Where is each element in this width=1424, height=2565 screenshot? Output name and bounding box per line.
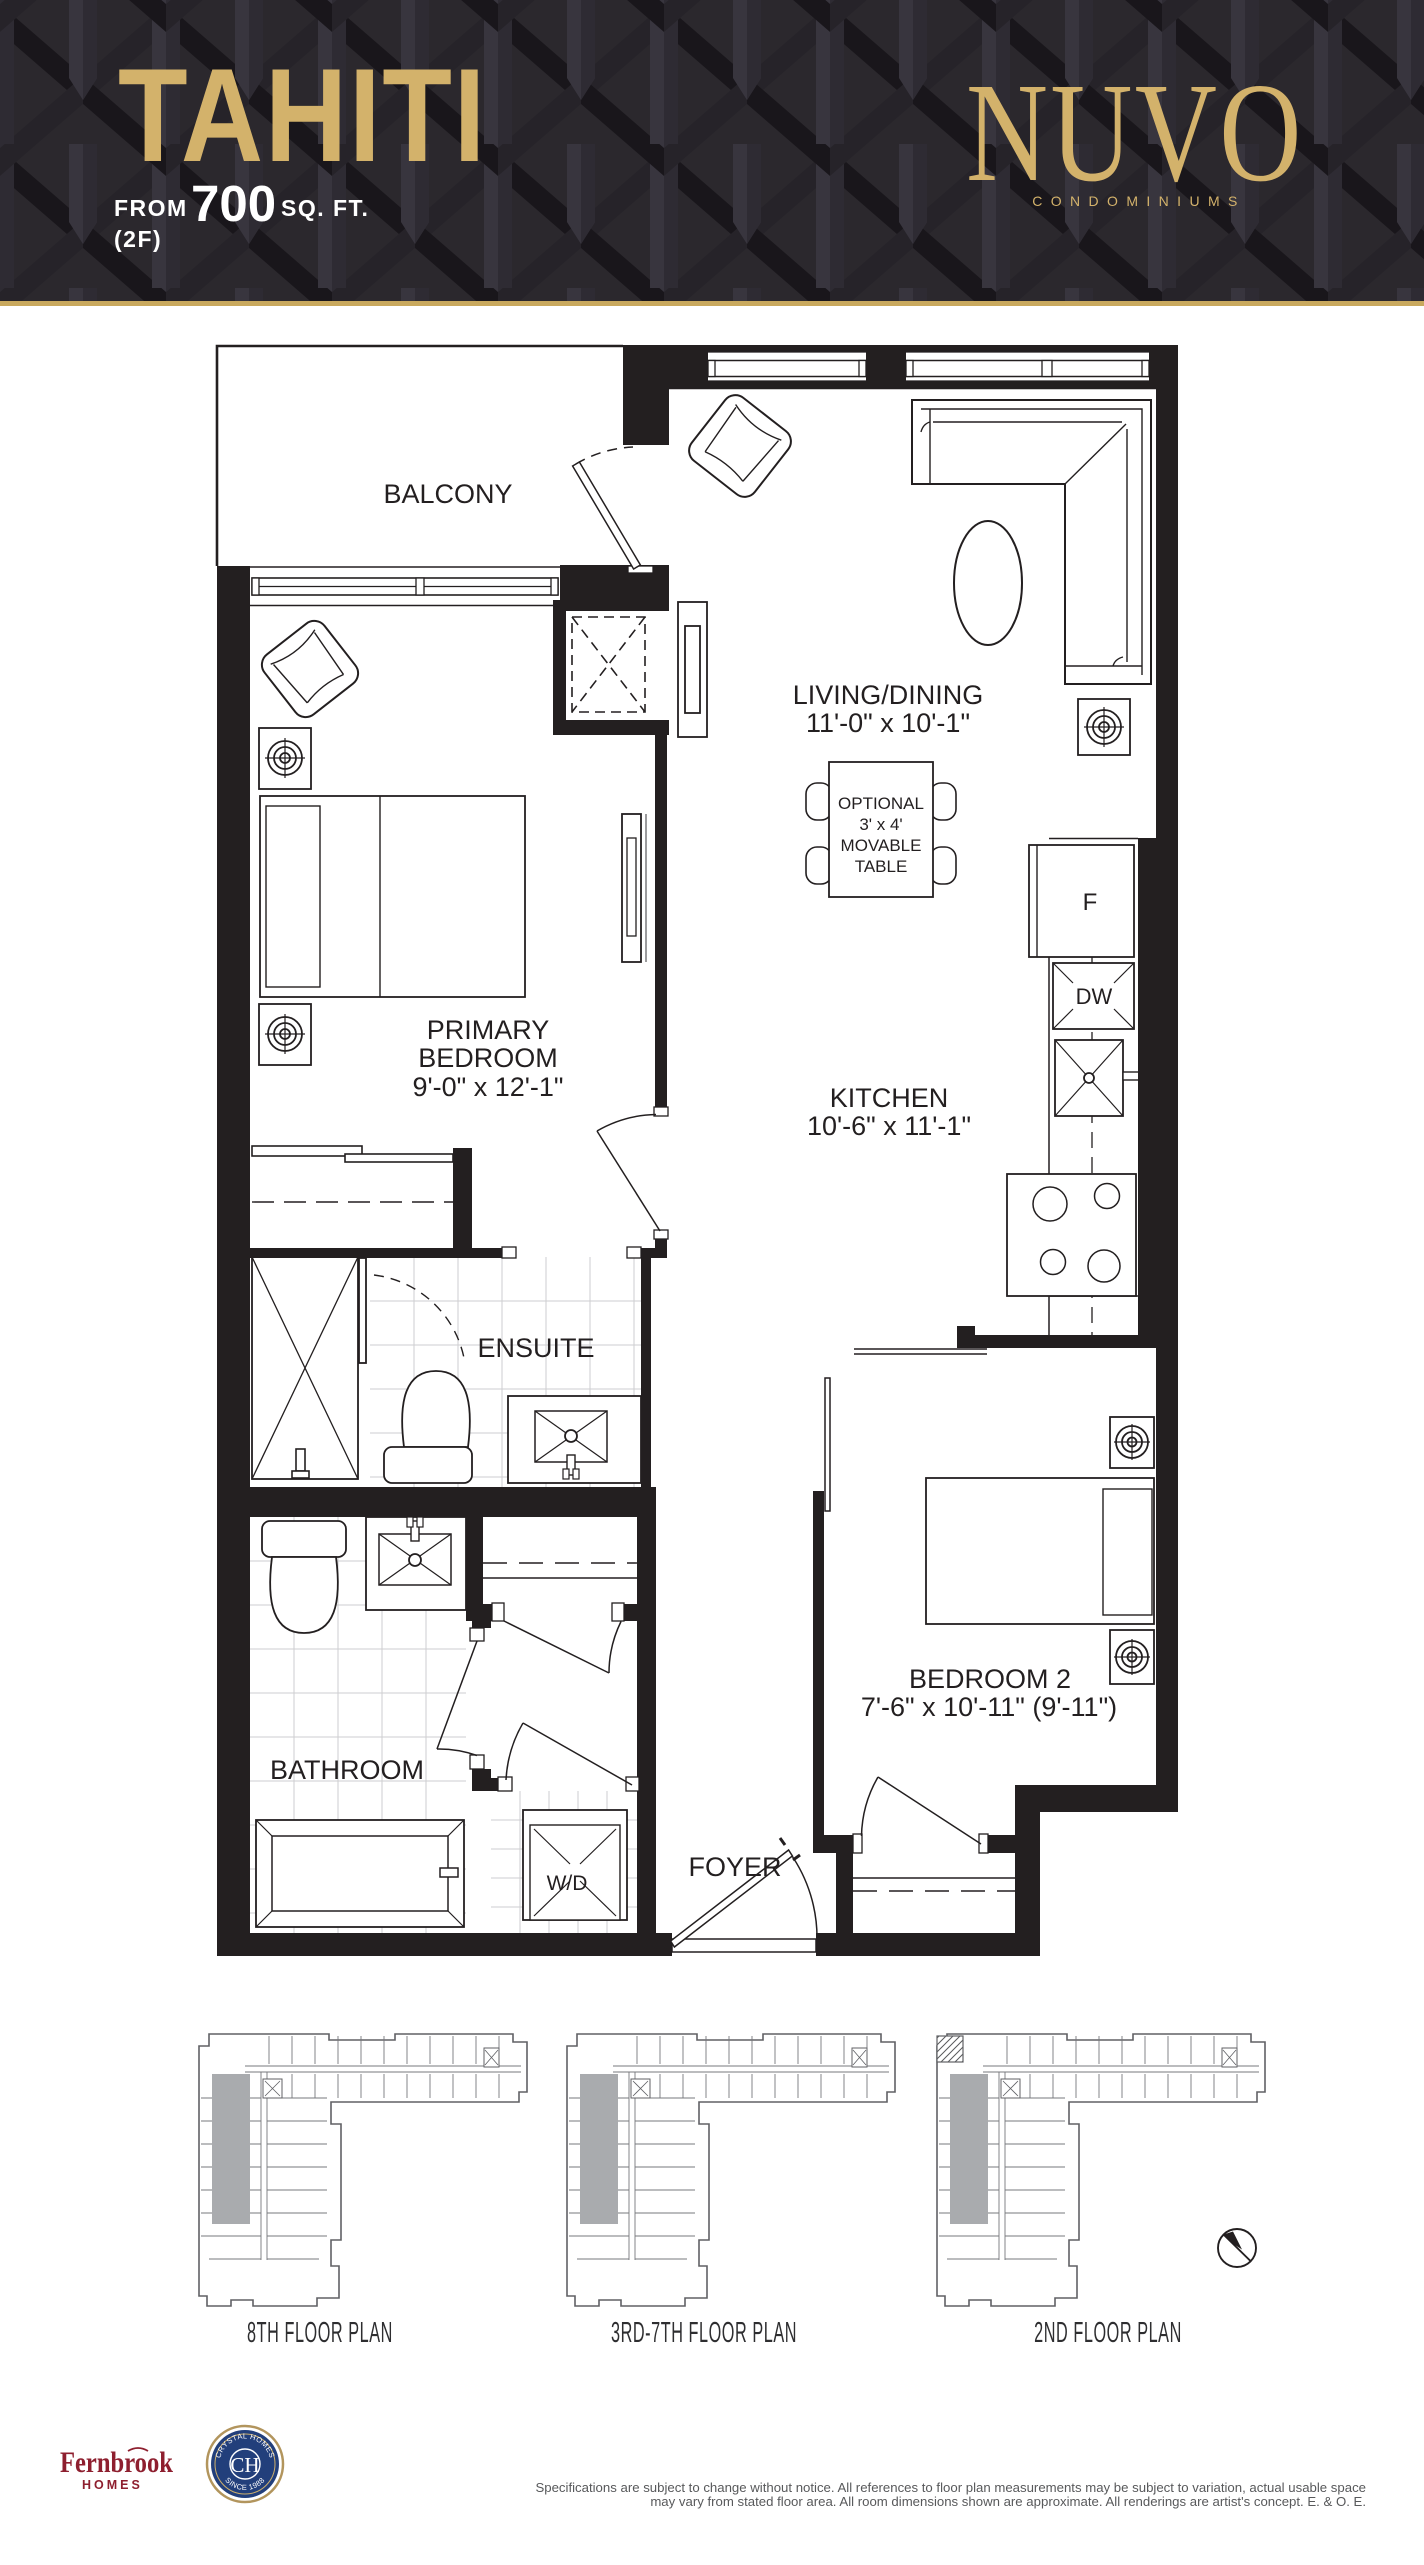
svg-text:BEDROOM: BEDROOM — [418, 1043, 558, 1073]
svg-text:10'-6" x 11'-1": 10'-6" x 11'-1" — [807, 1111, 971, 1141]
svg-text:SQ. FT.: SQ. FT. — [281, 195, 369, 221]
svg-text:2ND FLOOR PLAN: 2ND FLOOR PLAN — [1034, 2316, 1182, 2348]
svg-text:CONDOMINIUMS: CONDOMINIUMS — [1032, 193, 1246, 209]
svg-text:F: F — [1083, 889, 1098, 916]
svg-text:KITCHEN: KITCHEN — [830, 1083, 949, 1113]
svg-text:3RD-7TH FLOOR PLAN: 3RD-7TH FLOOR PLAN — [611, 2316, 797, 2348]
svg-text:BATHROOM: BATHROOM — [270, 1755, 424, 1785]
svg-text:FROM: FROM — [114, 195, 188, 221]
svg-text:7'-6" x 10'-11" (9'-11"): 7'-6" x 10'-11" (9'-11") — [861, 1692, 1117, 1722]
svg-text:11'-0" x 10'-1": 11'-0" x 10'-1" — [806, 708, 970, 738]
svg-text:700: 700 — [191, 175, 276, 232]
svg-text:ENSUITE: ENSUITE — [477, 1333, 594, 1363]
svg-text:(2F): (2F) — [114, 226, 162, 252]
svg-text:PRIMARY: PRIMARY — [427, 1015, 550, 1045]
svg-text:Fernbrook: Fernbrook — [60, 2446, 174, 2479]
svg-text:BEDROOM 2: BEDROOM 2 — [909, 1664, 1071, 1694]
svg-text:HOMES: HOMES — [82, 2478, 143, 2492]
svg-text:TABLE: TABLE — [855, 857, 908, 876]
svg-text:9'-0" x 12'-1": 9'-0" x 12'-1" — [412, 1072, 563, 1102]
svg-text:TAHITI: TAHITI — [118, 42, 487, 190]
svg-text:W/D: W/D — [547, 1872, 588, 1895]
svg-text:MOVABLE: MOVABLE — [841, 836, 922, 855]
svg-text:DW: DW — [1076, 984, 1113, 1009]
svg-text:CH: CH — [230, 2453, 259, 2477]
svg-text:3' x 4': 3' x 4' — [859, 815, 902, 834]
svg-text:8TH FLOOR PLAN: 8TH FLOOR PLAN — [247, 2316, 393, 2348]
svg-text:Specifications are subject to: Specifications are subject to change wit… — [535, 2480, 1366, 2495]
svg-text:OPTIONAL: OPTIONAL — [838, 794, 924, 813]
svg-text:FOYER: FOYER — [688, 1852, 781, 1882]
svg-text:may vary from stated floor are: may vary from stated floor area. All roo… — [650, 2494, 1366, 2509]
svg-text:BALCONY: BALCONY — [383, 479, 512, 509]
svg-text:NUVO: NUVO — [966, 53, 1304, 211]
svg-text:LIVING/DINING: LIVING/DINING — [793, 680, 984, 710]
